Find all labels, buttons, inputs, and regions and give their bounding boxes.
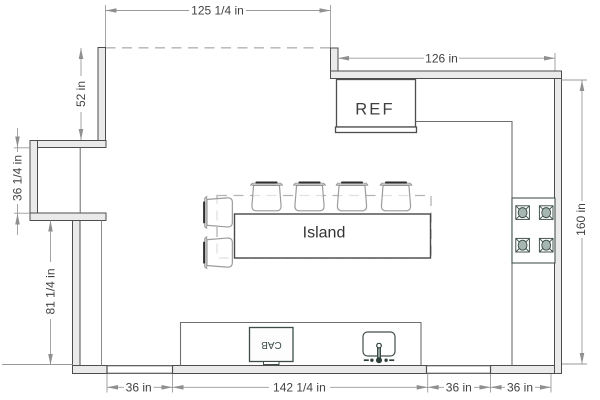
svg-text:142 1/4 in: 142 1/4 in	[273, 381, 326, 395]
svg-text:36 in: 36 in	[507, 381, 533, 395]
svg-text:160 in: 160 in	[574, 203, 588, 236]
svg-text:81 1/4 in: 81 1/4 in	[44, 268, 58, 314]
svg-text:125 1/4 in: 125 1/4 in	[191, 4, 244, 18]
svg-text:52 in: 52 in	[74, 81, 88, 107]
svg-text:REF: REF	[355, 101, 395, 119]
svg-text:36 in: 36 in	[126, 381, 152, 395]
svg-text:Island: Island	[303, 225, 346, 242]
svg-text:36 in: 36 in	[446, 381, 472, 395]
svg-text:126 in: 126 in	[425, 51, 458, 65]
svg-text:36 1/4 in: 36 1/4 in	[11, 155, 25, 201]
svg-text:CAB: CAB	[261, 339, 282, 350]
